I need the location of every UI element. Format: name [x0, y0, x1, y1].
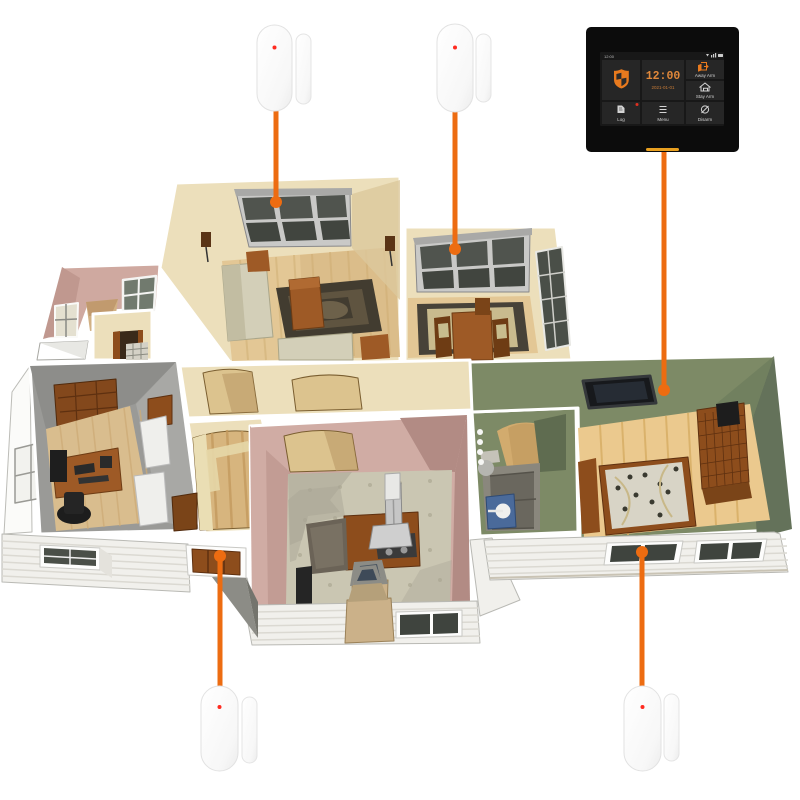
svg-text:Away Arm: Away Arm: [695, 73, 715, 78]
svg-text:Menu: Menu: [657, 117, 669, 122]
svg-text:Disarm: Disarm: [698, 117, 713, 122]
svg-text:Log: Log: [617, 117, 625, 122]
svg-text:12:00: 12:00: [604, 54, 615, 59]
svg-text:2021-01-01: 2021-01-01: [651, 85, 675, 90]
svg-text:12:00: 12:00: [646, 70, 681, 83]
svg-text:Stay Arm: Stay Arm: [696, 94, 715, 99]
